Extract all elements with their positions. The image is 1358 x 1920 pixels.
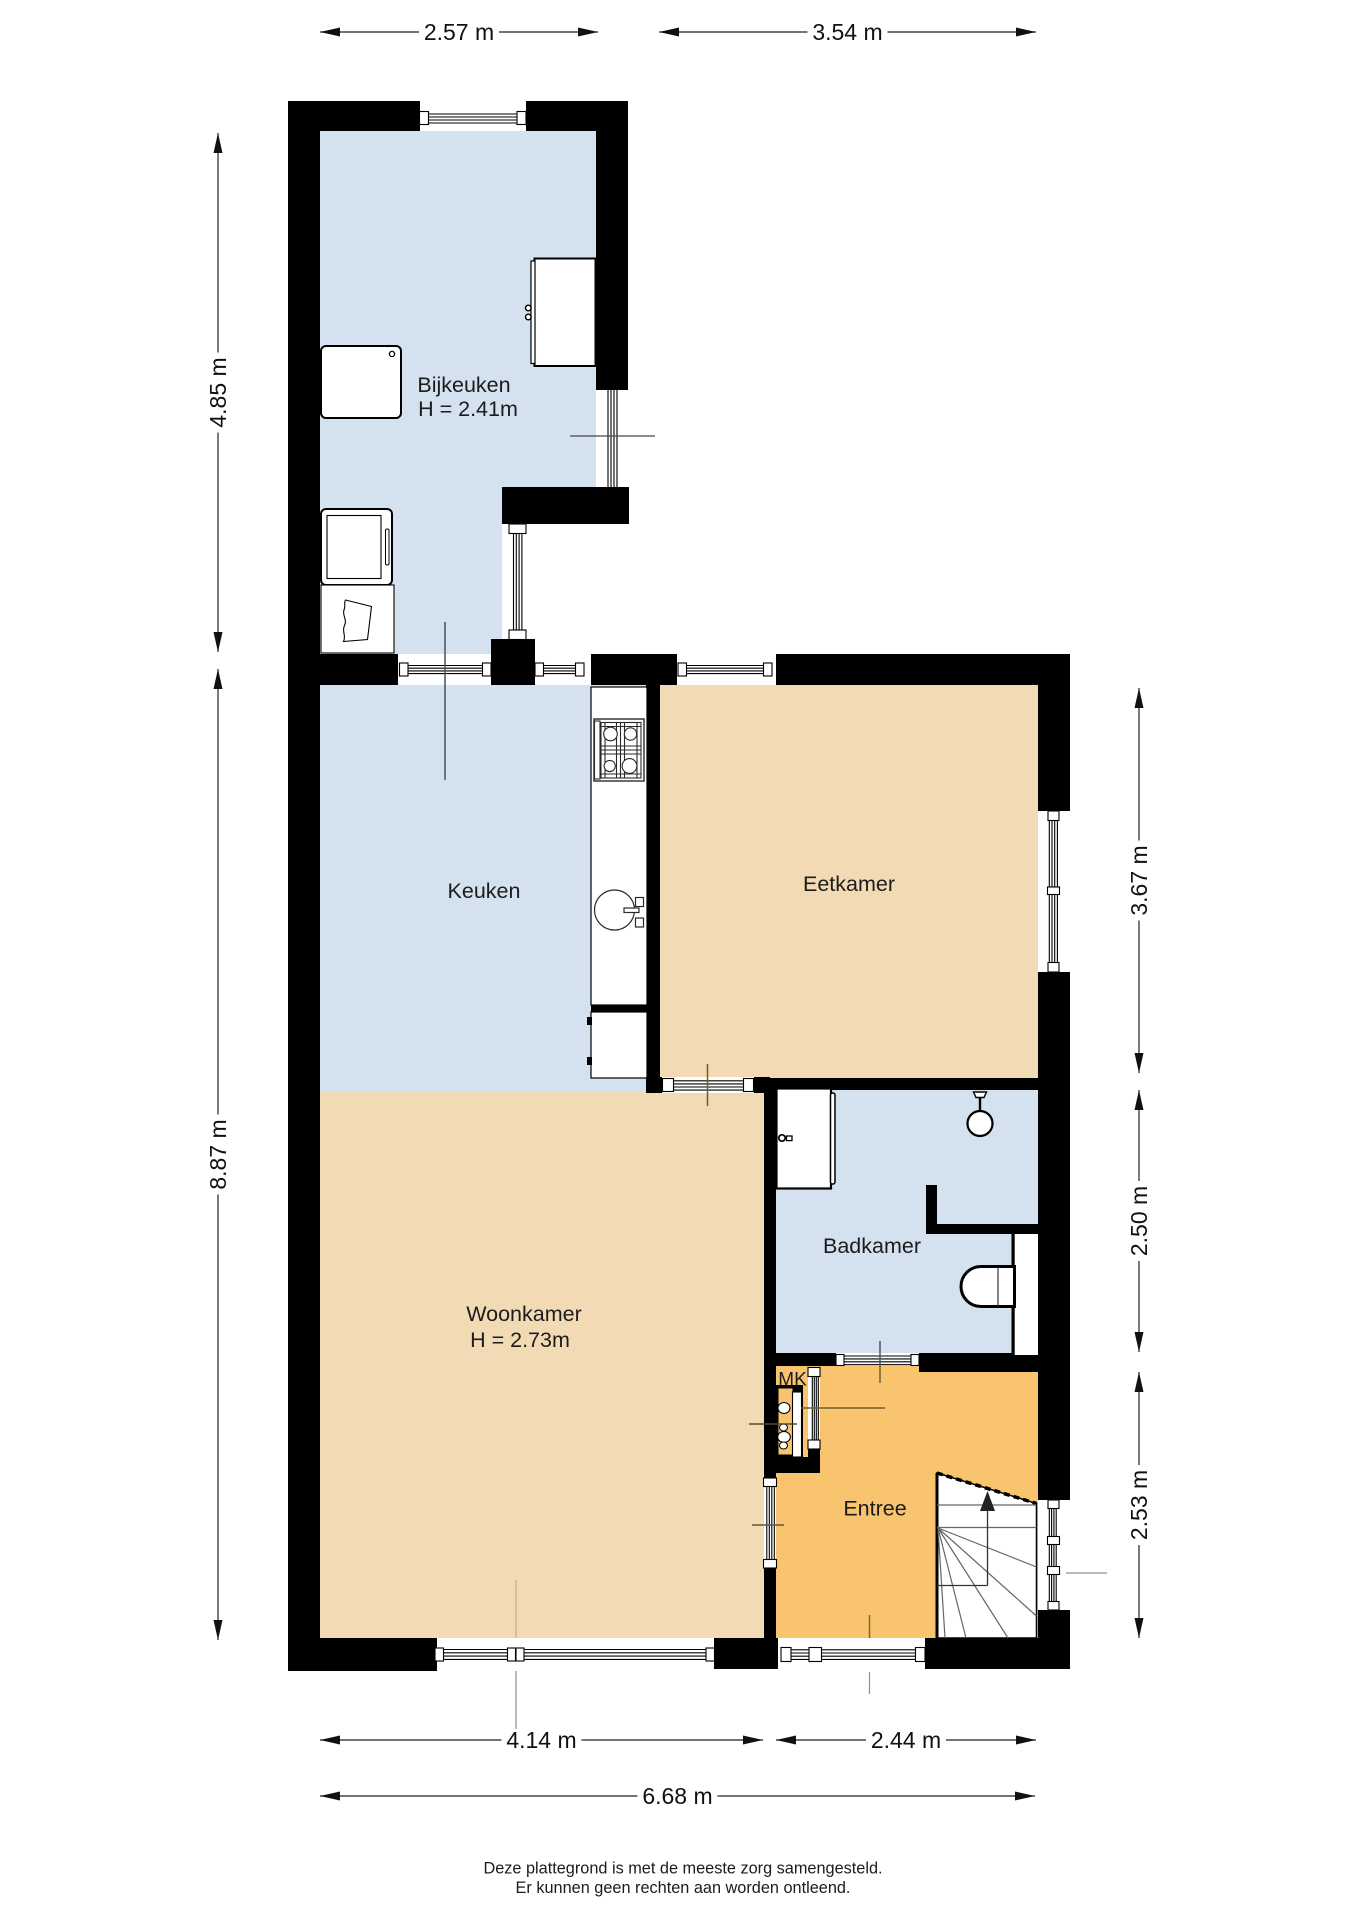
svg-text:Keuken: Keuken	[448, 879, 521, 903]
svg-text:2.50 m: 2.50 m	[1126, 1186, 1152, 1256]
svg-text:H = 2.73m: H = 2.73m	[470, 1328, 570, 1352]
svg-text:3.54 m: 3.54 m	[812, 19, 882, 45]
svg-text:3.67 m: 3.67 m	[1126, 845, 1152, 915]
svg-text:Woonkamer: Woonkamer	[466, 1302, 582, 1326]
svg-text:Er kunnen geen rechten aan wor: Er kunnen geen rechten aan worden ontlee…	[516, 1879, 851, 1897]
svg-text:Badkamer: Badkamer	[823, 1234, 921, 1258]
svg-text:Deze plattegrond is met de mee: Deze plattegrond is met de meeste zorg s…	[483, 1860, 882, 1878]
svg-text:Eetkamer: Eetkamer	[803, 872, 895, 896]
svg-text:MK: MK	[778, 1370, 807, 1391]
svg-text:2.53 m: 2.53 m	[1126, 1470, 1152, 1540]
svg-text:2.44 m: 2.44 m	[871, 1727, 941, 1753]
svg-text:4.85 m: 4.85 m	[205, 357, 231, 427]
svg-text:2.57 m: 2.57 m	[424, 19, 494, 45]
svg-text:Bijkeuken: Bijkeuken	[417, 373, 510, 397]
svg-text:Entree: Entree	[843, 1497, 906, 1521]
svg-text:H = 2.41m: H = 2.41m	[418, 397, 518, 421]
svg-text:8.87 m: 8.87 m	[205, 1119, 231, 1189]
svg-text:4.14 m: 4.14 m	[506, 1727, 576, 1753]
svg-text:6.68 m: 6.68 m	[642, 1783, 712, 1809]
